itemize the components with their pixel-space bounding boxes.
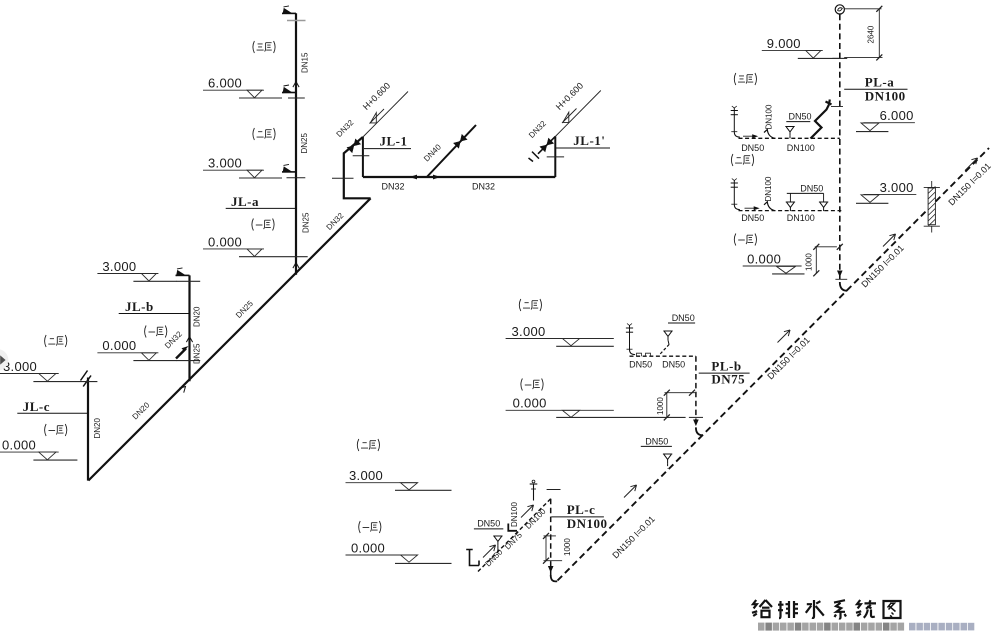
svg-text:DN50: DN50 xyxy=(662,360,685,370)
svg-text:DN25: DN25 xyxy=(302,212,311,233)
svg-text:JL-a: JL-a xyxy=(231,194,259,209)
svg-text:DN150 I=0.01: DN150 I=0.01 xyxy=(859,243,906,290)
svg-text:0.000: 0.000 xyxy=(102,338,136,353)
svg-text:0.000: 0.000 xyxy=(747,251,781,266)
svg-text:3.000: 3.000 xyxy=(102,259,136,274)
svg-text:JL-1': JL-1' xyxy=(573,133,605,148)
svg-text:0.000: 0.000 xyxy=(2,438,36,453)
svg-text:3.000: 3.000 xyxy=(349,468,383,483)
svg-text:1000: 1000 xyxy=(563,538,572,556)
svg-text:JL-1: JL-1 xyxy=(380,134,408,149)
svg-text:0.000: 0.000 xyxy=(208,234,242,249)
svg-text:DN25: DN25 xyxy=(300,132,309,153)
svg-text:DN20: DN20 xyxy=(93,417,102,438)
svg-text:DN50: DN50 xyxy=(800,183,823,193)
svg-text:0.000: 0.000 xyxy=(351,540,385,555)
svg-text:DN150 I=0.01: DN150 I=0.01 xyxy=(765,335,812,382)
svg-text:DN100: DN100 xyxy=(567,516,608,531)
svg-text:DN100: DN100 xyxy=(787,143,815,153)
svg-text:2640: 2640 xyxy=(867,25,876,43)
svg-text:JL-b: JL-b xyxy=(125,299,154,314)
svg-text:DN32: DN32 xyxy=(472,182,495,192)
svg-text:DN100: DN100 xyxy=(787,213,815,223)
svg-text:DN32: DN32 xyxy=(325,211,346,232)
svg-text:H+0.600: H+0.600 xyxy=(554,81,585,112)
svg-text:3.000: 3.000 xyxy=(512,324,546,339)
svg-text:6.000: 6.000 xyxy=(880,108,914,123)
svg-text:DN100: DN100 xyxy=(510,502,519,527)
svg-text:DN50: DN50 xyxy=(741,143,764,153)
svg-text:DN100: DN100 xyxy=(524,507,548,531)
svg-text:DN75: DN75 xyxy=(711,372,745,387)
svg-text:DN25: DN25 xyxy=(193,343,202,364)
svg-text:DN32: DN32 xyxy=(527,119,548,140)
svg-text:DN50: DN50 xyxy=(645,436,668,446)
svg-text:DN32: DN32 xyxy=(163,329,184,350)
svg-text:DN40: DN40 xyxy=(422,142,443,163)
svg-text:DN100: DN100 xyxy=(865,88,906,103)
svg-text:DN100: DN100 xyxy=(764,176,773,201)
svg-text:DN50: DN50 xyxy=(672,313,695,323)
svg-text:DN32: DN32 xyxy=(335,118,356,139)
svg-text:DN20: DN20 xyxy=(193,306,202,327)
svg-text:0.000: 0.000 xyxy=(513,396,547,411)
svg-text:1000: 1000 xyxy=(656,397,665,415)
svg-text:DN50: DN50 xyxy=(741,213,764,223)
svg-text:H+0.600: H+0.600 xyxy=(361,81,392,112)
svg-text:PL-a: PL-a xyxy=(865,75,894,90)
svg-text:3.000: 3.000 xyxy=(880,180,914,195)
svg-text:PL-c: PL-c xyxy=(567,502,596,517)
svg-text:DN50: DN50 xyxy=(477,519,500,529)
svg-text:DN32: DN32 xyxy=(382,181,405,191)
svg-text:3.000: 3.000 xyxy=(208,156,242,171)
svg-text:DN50: DN50 xyxy=(629,360,652,370)
svg-text:JL-c: JL-c xyxy=(23,399,50,414)
svg-text:DN75: DN75 xyxy=(503,530,524,551)
svg-text:DN50: DN50 xyxy=(789,112,812,122)
svg-text:6.000: 6.000 xyxy=(208,76,242,91)
svg-text:9.000: 9.000 xyxy=(767,36,801,51)
svg-text:DN20: DN20 xyxy=(131,400,152,421)
svg-text:1000: 1000 xyxy=(805,253,814,271)
svg-text:DN15: DN15 xyxy=(301,52,310,73)
svg-text:DN100: DN100 xyxy=(765,104,774,129)
